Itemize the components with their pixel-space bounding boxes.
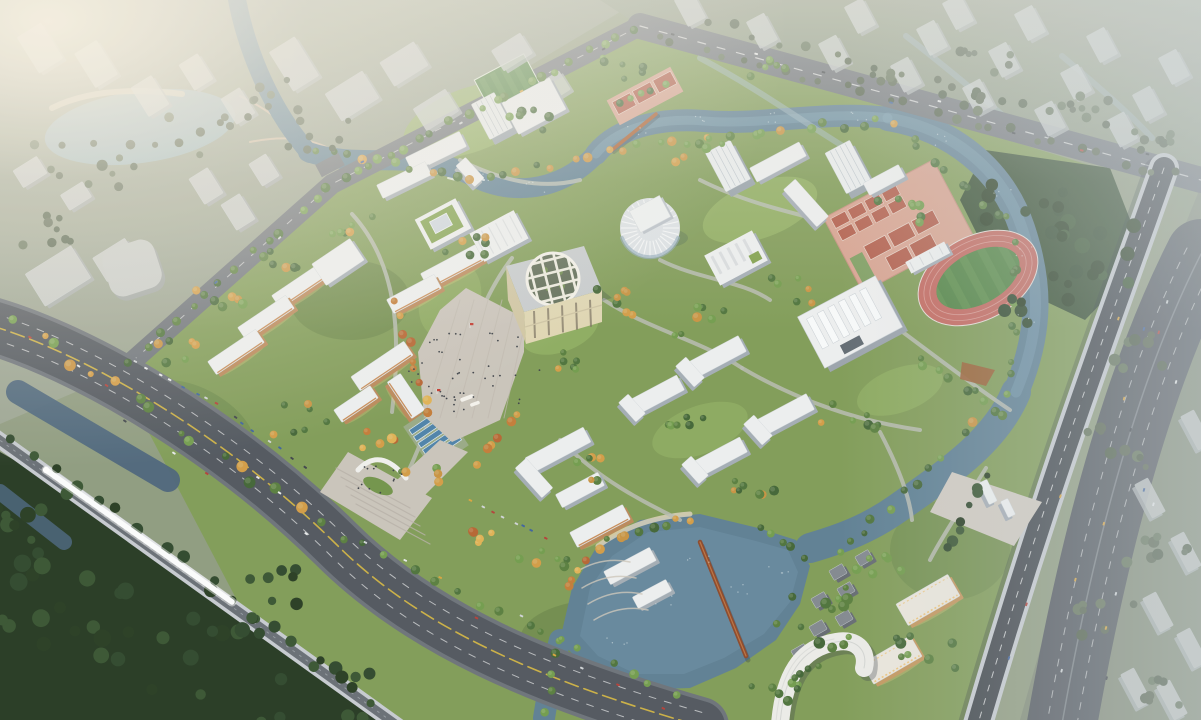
atmosphere-haze <box>0 0 1201 720</box>
rendering-canvas <box>0 0 1201 720</box>
aerial-campus-rendering <box>0 0 1201 720</box>
